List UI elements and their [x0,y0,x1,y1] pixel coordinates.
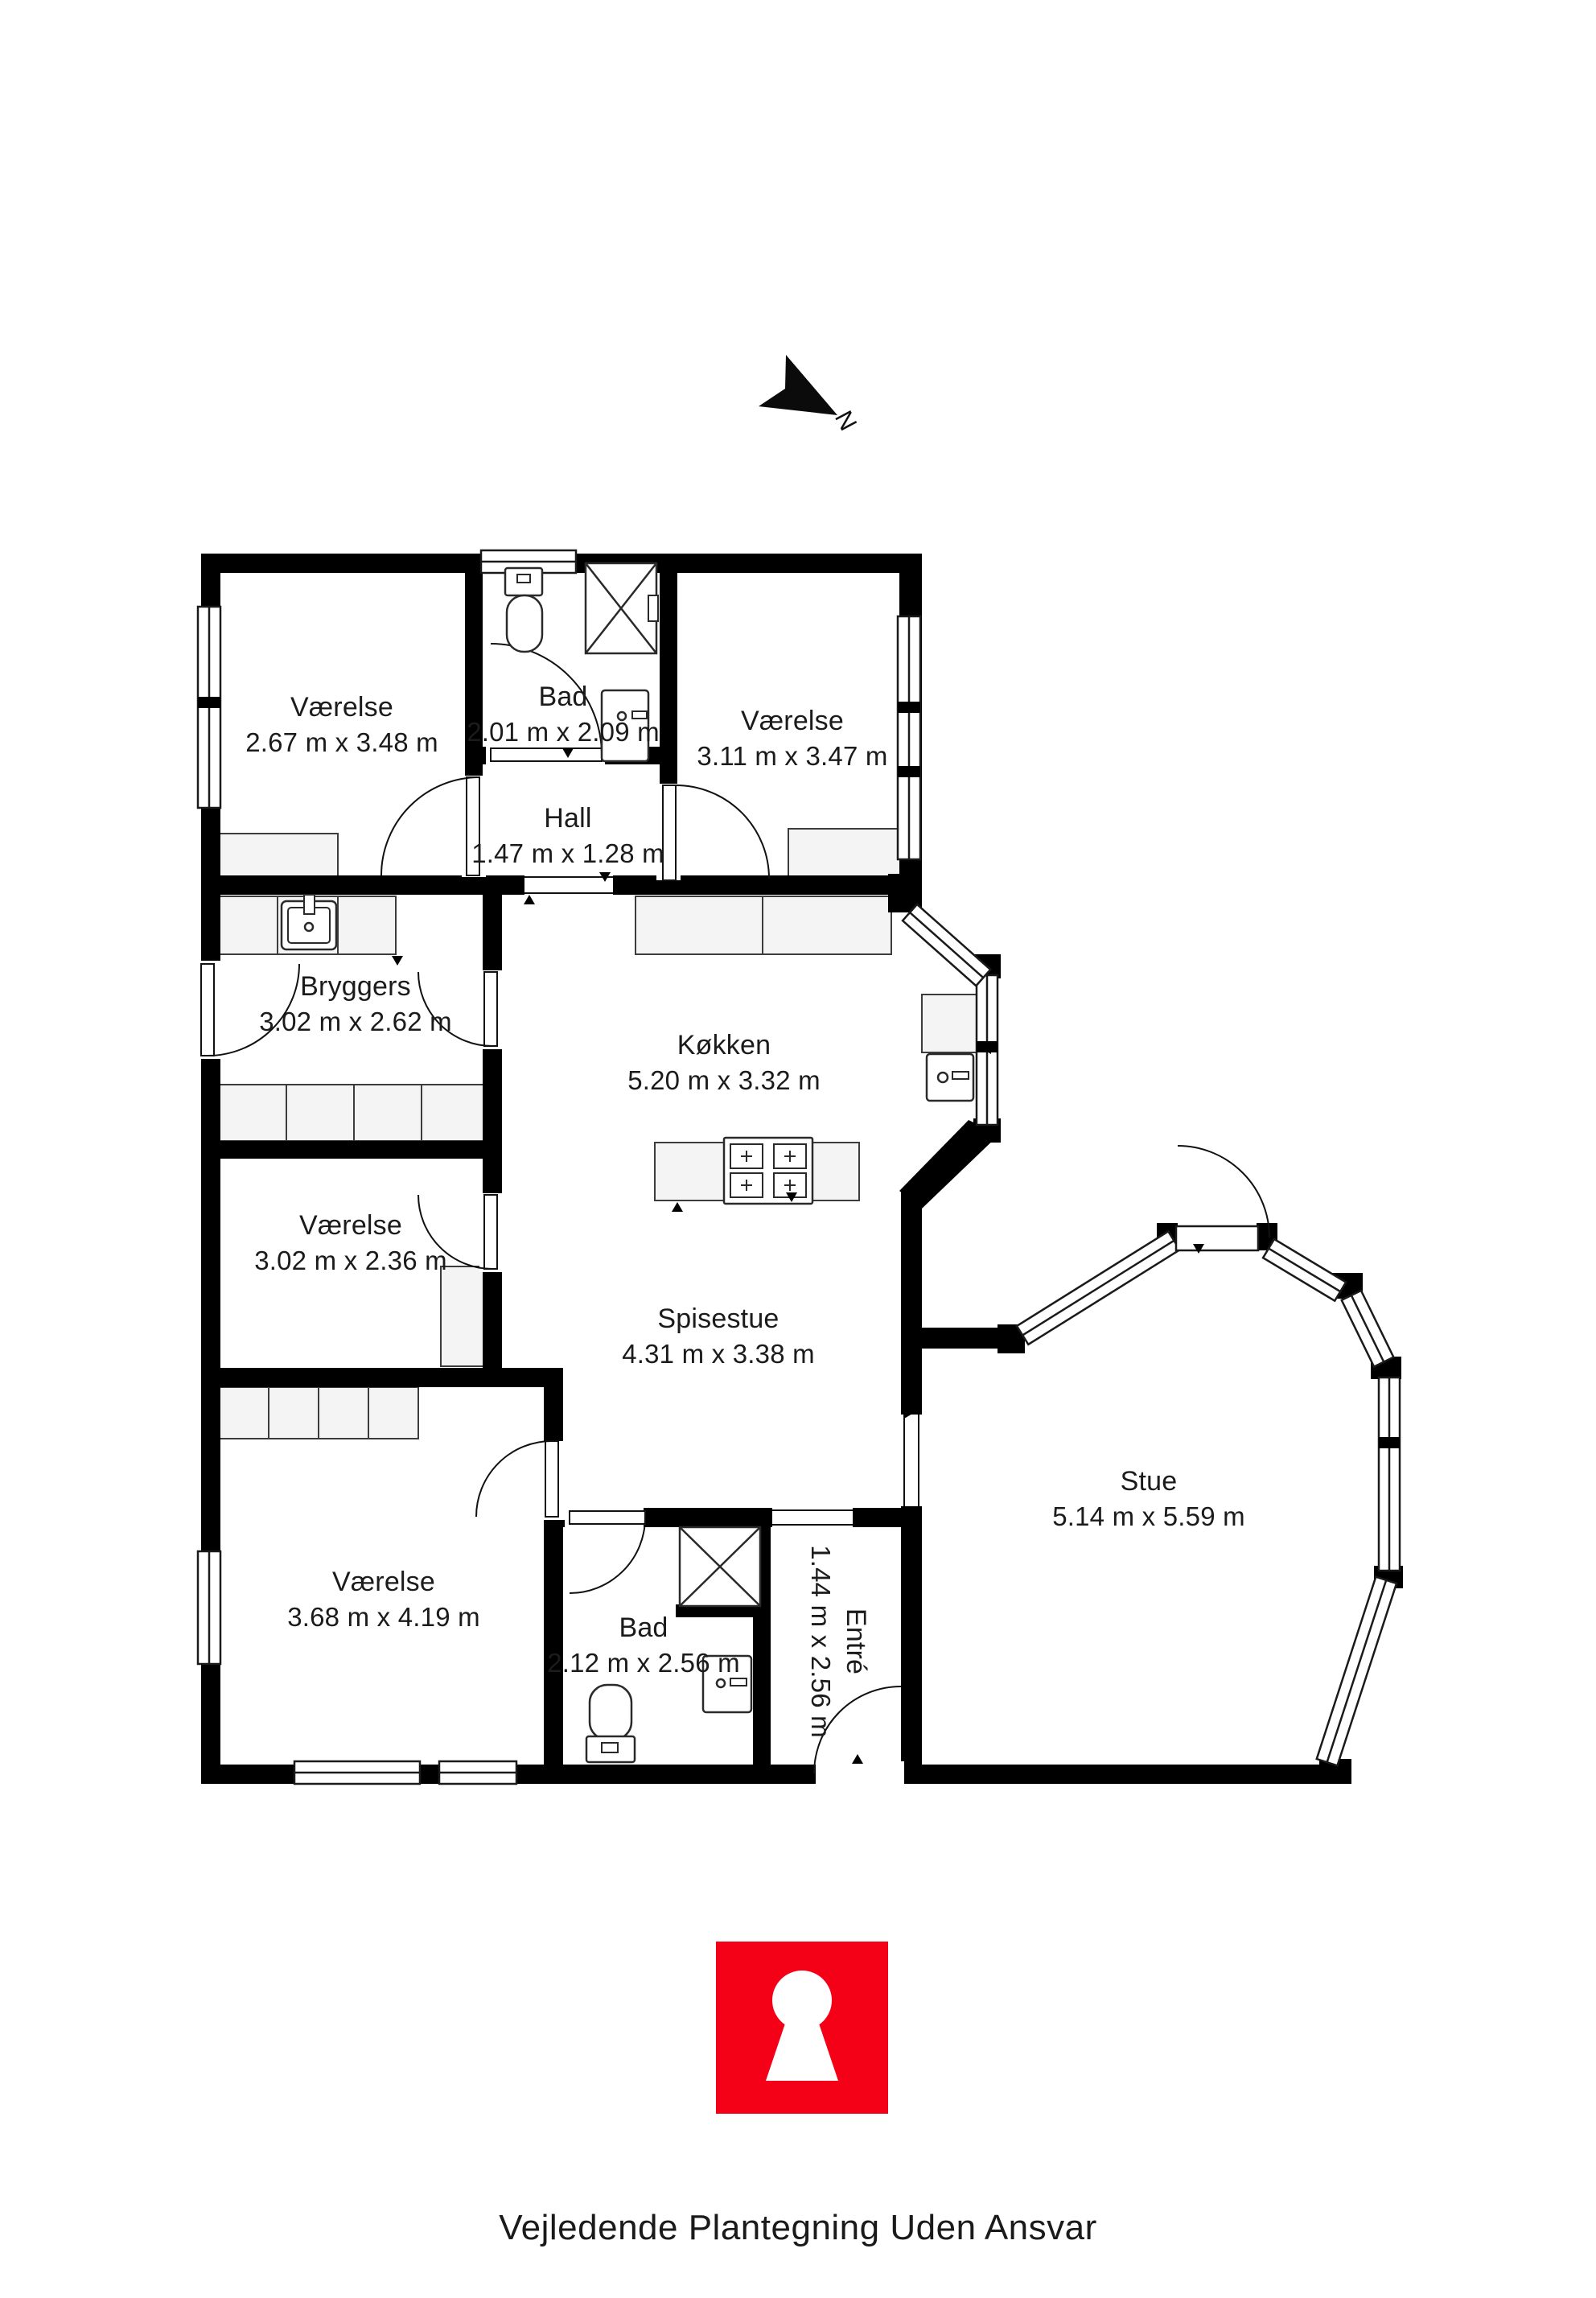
door-leaf [484,1195,497,1269]
door-leaf [484,972,497,1046]
room-label-bad-bottom: Bad 2.12 m x 2.56 m [547,1611,740,1680]
shower-fixture [586,563,658,653]
keyhole-logo-icon [716,1942,888,2114]
dishwasher-fixture [927,1054,973,1101]
wardrobe [217,834,338,880]
stove-fixture [724,1138,812,1204]
room-label-vaerelse-nw: Værelse 2.67 m x 3.48 m [245,690,438,760]
floor-plan-page: Værelse 2.67 m x 3.48 m Bad 2.01 m x 2.0… [0,0,1596,2298]
door-leaf [201,964,214,1056]
floor-plan-drawing [0,0,1596,2298]
wardrobe [788,829,901,877]
room-label-hall: Hall 1.47 m x 1.28 m [471,801,664,871]
door-leaf [545,1441,558,1517]
room-label-bryggers: Bryggers 3.02 m x 2.62 m [259,970,452,1039]
room-label-vaerelse-w: Værelse 3.02 m x 2.36 m [254,1209,447,1278]
room-label-bad-top: Bad 2.01 m x 2.09 m [467,680,660,749]
room-label-vaerelse-sw: Værelse 3.68 m x 4.19 m [287,1565,480,1634]
sink-fixture [282,895,336,949]
room-label-stue: Stue 5.14 m x 5.59 m [1052,1464,1245,1534]
toilet-fixture [586,1685,635,1762]
room-label-koekken: Køkken 5.20 m x 3.32 m [627,1028,821,1098]
north-arrow-icon [759,355,837,415]
footer-disclaimer: Vejledende Plantegning Uden Ansvar [0,2208,1596,2248]
room-label-spisestue: Spisestue 4.31 m x 3.38 m [622,1302,815,1371]
shower-fixture [680,1527,760,1606]
terrace-door [1176,1226,1258,1250]
room-label-entre: Entré 1.44 m x 2.56 m [804,1545,873,1738]
room-label-vaerelse-ne: Værelse 3.11 m x 3.47 m [697,704,887,773]
door-leaf [491,748,602,761]
kitchen-counter [922,995,978,1052]
door-leaf [570,1511,645,1524]
toilet-fixture [505,568,542,652]
door-leaf [663,785,676,880]
